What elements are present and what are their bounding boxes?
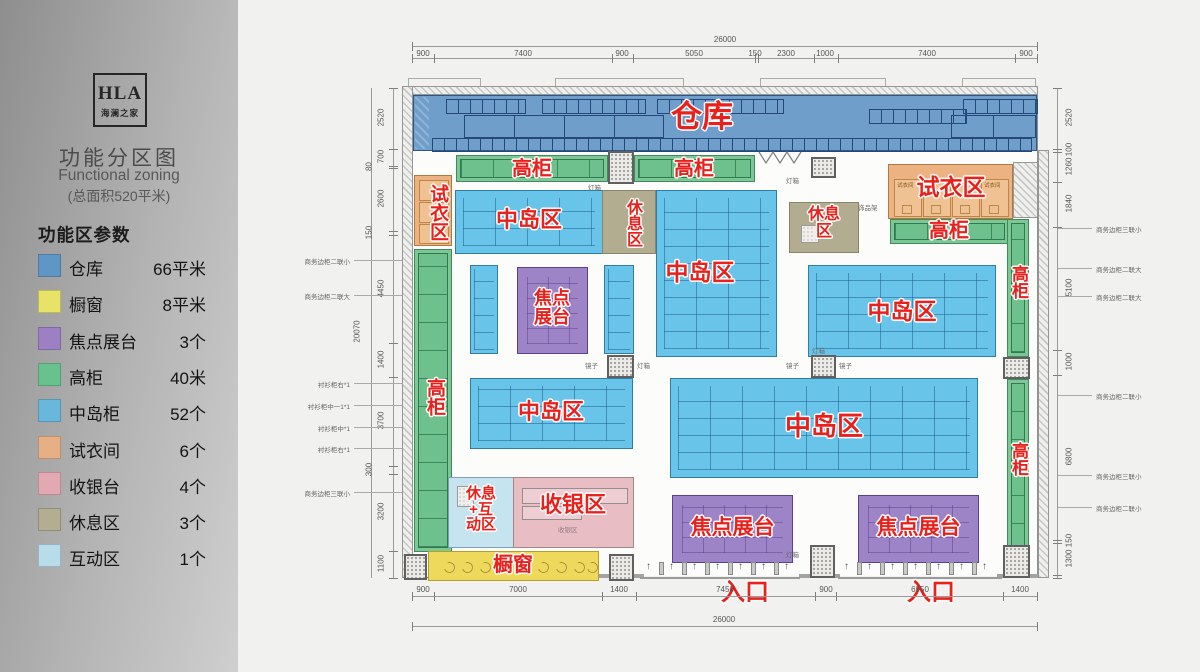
dim-tick	[1053, 540, 1062, 541]
dim-tick	[1053, 350, 1062, 351]
dim-tick	[1053, 152, 1062, 153]
legend-label: 试衣间	[69, 437, 120, 462]
wall-top	[412, 86, 1038, 95]
legend-label: 休息区	[69, 509, 120, 534]
dim-top-5: 2300	[770, 49, 802, 58]
brand-subtitle: 海澜之家	[95, 107, 145, 119]
entrance-arrow-icon: ↑	[715, 561, 720, 572]
dim-tick	[389, 578, 398, 579]
island-fixtures	[474, 269, 494, 350]
entrance-post	[880, 562, 885, 575]
brand-title: HLA	[95, 83, 145, 105]
entrance-post	[949, 562, 954, 575]
wall-right	[1038, 150, 1049, 578]
zone-island-strip-a	[470, 265, 498, 354]
annotation-leader	[354, 427, 402, 428]
light-box-text: 灯箱	[637, 360, 650, 370]
entrance-arrow-icon: ↑	[646, 561, 651, 572]
legend-value: 40米	[118, 364, 206, 389]
fitting-stool	[902, 205, 912, 214]
dim-tick	[389, 343, 398, 344]
dim-line-bottom-total	[412, 626, 1038, 627]
dim-tick	[1053, 578, 1062, 579]
warehouse-shelf-row	[432, 138, 1032, 152]
window-swirl-icon	[585, 560, 600, 575]
warehouse-shelf-row	[869, 109, 967, 124]
dim-line-bottom-segments	[412, 596, 1038, 597]
legend-swatch-warehouse	[38, 254, 61, 277]
legend-value: 3个	[118, 509, 206, 534]
dim-left-8: 300	[365, 448, 374, 492]
column	[404, 554, 427, 580]
functional-zoning-plan: HLA 海澜之家 功能分区图 Functional zoning (总面积520…	[0, 0, 1200, 672]
entrance-post	[705, 562, 710, 575]
column	[1003, 357, 1030, 379]
legend-label: 橱窗	[69, 291, 103, 316]
dim-left-6: 1400	[377, 338, 386, 382]
legend-swatch-cabinet	[38, 363, 61, 386]
warehouse-shelf-row	[963, 99, 1038, 114]
label-island: 中岛区	[776, 413, 872, 440]
dim-tick	[389, 88, 398, 89]
dim-right-0: 2520	[1065, 96, 1074, 140]
legend-swatch-interact	[38, 544, 61, 567]
entrance-post	[774, 562, 779, 575]
label-focus: 焦点展台	[862, 517, 975, 539]
annotation-leader	[354, 405, 402, 406]
zone-island-strip-b	[604, 265, 634, 354]
accessory-rack-text: 饰品架	[858, 202, 878, 212]
label-rest: 休息区	[618, 194, 640, 252]
entrance-post	[751, 562, 756, 575]
dim-left-3: 2600	[377, 177, 386, 221]
entrance-post	[903, 562, 908, 575]
light-box-text: 灯箱	[786, 175, 799, 185]
dim-bottom-2: 1400	[601, 585, 637, 594]
annotation-leader	[1058, 507, 1092, 508]
dim-tick	[389, 377, 398, 378]
page-subtitle: Functional zoning	[0, 167, 238, 185]
legend-value: 1个	[118, 545, 206, 570]
column	[810, 545, 835, 578]
dim-right-8: 1300	[1065, 537, 1074, 581]
label-focus: 焦点展台	[532, 289, 572, 326]
label-fitting-left: 试衣区	[421, 180, 447, 244]
dim-top-6: 1000	[809, 49, 841, 58]
annotation-left-5: 衬衫柜右*1	[250, 444, 350, 454]
label-cabinet: 高柜	[1009, 256, 1027, 308]
legend-value: 3个	[118, 328, 206, 353]
annotation-left-6: 商务边柜三联小	[250, 488, 350, 498]
dim-left-1: 700	[377, 135, 386, 179]
annotation-right-0: 商务边柜三联小	[1096, 224, 1142, 234]
dim-tick	[1053, 88, 1062, 89]
entrance-arrow-icon: ↑	[982, 561, 987, 572]
annotation-right-4: 商务边柜三联小	[1096, 471, 1142, 481]
dim-tick	[1053, 543, 1062, 544]
annotation-leader	[354, 492, 402, 493]
dim-top-4: 150	[743, 49, 767, 58]
legend-value: 52个	[118, 400, 206, 425]
label-cabinet: 高柜	[420, 371, 444, 423]
annotation-left-0: 商务边柜二联小	[250, 256, 350, 266]
dim-left-4: 150	[365, 211, 374, 255]
annotation-right-3: 商务边柜二联小	[1096, 391, 1142, 401]
dim-tick	[1053, 575, 1062, 576]
label-island: 中岛区	[660, 261, 740, 285]
annotation-left-4: 衬衫柜中*1	[250, 423, 350, 433]
entrance-arrow-icon: ↑	[936, 561, 941, 572]
dim-bottom-6: 1400	[1002, 585, 1038, 594]
dim-tick	[389, 551, 398, 552]
annotation-left-2: 衬衫柜右*1	[250, 379, 350, 389]
annotation-leader	[1058, 475, 1092, 476]
column	[811, 157, 836, 178]
column	[608, 151, 634, 184]
entrance-post	[926, 562, 931, 575]
entrance-post	[857, 562, 862, 575]
warehouse-shelf-row	[542, 99, 646, 114]
dim-top-7: 7400	[909, 49, 945, 58]
legend-swatch-window	[38, 290, 61, 313]
column	[1003, 545, 1030, 578]
dim-bottom-1: 7000	[500, 585, 536, 594]
annotation-leader	[354, 260, 402, 261]
warehouse-shelf-row	[446, 99, 526, 114]
entrance-post	[728, 562, 733, 575]
annotation-leader	[354, 448, 402, 449]
entrance-arrow-icon: ↑	[844, 561, 849, 572]
legend-label: 中岛柜	[69, 400, 120, 425]
dim-tick	[1053, 182, 1062, 183]
dim-bottom-4: 900	[808, 585, 844, 594]
entrance-arrow-icon: ↑	[890, 561, 895, 572]
fitting-stool	[989, 205, 999, 214]
dim-right-6: 6800	[1065, 435, 1074, 479]
annotation-left-3: 衬衫柜中一1*1	[250, 401, 350, 411]
dim-left-0: 2520	[377, 96, 386, 140]
legend-swatch-cashier	[38, 472, 61, 495]
label-warehouse: 仓库	[652, 101, 752, 133]
annotation-leader	[354, 295, 402, 296]
annotation-right-2: 商务边柜二联大	[1096, 292, 1142, 302]
entrance-arrow-icon: ↑	[784, 561, 789, 572]
window-swirl-icon	[554, 560, 569, 575]
sidebar: HLA 海澜之家 功能分区图 Functional zoning (总面积520…	[0, 0, 238, 672]
dim-bottom-5: 6950	[902, 585, 938, 594]
brand-logo: HLA 海澜之家	[93, 73, 147, 127]
dim-line-top-segments	[412, 58, 1038, 59]
dim-tick	[389, 166, 398, 167]
label-cabinet: 高柜	[506, 159, 558, 180]
wall-left	[402, 86, 413, 578]
entrance-arrow-icon: ↑	[738, 561, 743, 572]
annotation-leader	[1058, 228, 1092, 229]
legend-value: 4个	[118, 473, 206, 498]
label-cabinet: 高柜	[1009, 433, 1027, 485]
dim-top-total: 26000	[696, 35, 754, 44]
dim-top-2: 900	[604, 49, 640, 58]
dim-right-3: 1840	[1065, 182, 1074, 226]
total-area-note: (总面积520平米)	[0, 186, 238, 206]
legend-value: 66平米	[118, 255, 206, 280]
dim-bottom-0: 900	[405, 585, 441, 594]
door-zigzag-icon	[758, 149, 806, 166]
dim-top-8: 900	[1008, 49, 1044, 58]
entrance-arrow-icon: ↑	[761, 561, 766, 572]
dim-tick	[389, 474, 398, 475]
label-window: 橱窗	[486, 555, 540, 576]
label-rest-interact: 休息+互动区	[463, 486, 499, 533]
label-cabinet: 高柜	[668, 159, 720, 180]
entrance-post	[972, 562, 977, 575]
legend-value: 8平米	[118, 291, 206, 316]
dim-top-3: 5050	[676, 49, 712, 58]
dim-top-1: 7400	[505, 49, 541, 58]
label-rest: 休息区	[806, 207, 842, 240]
label-cabinet: 高柜	[923, 221, 975, 242]
label-focus: 焦点展台	[676, 517, 789, 539]
legend-swatch-rest	[38, 508, 61, 531]
legend-swatch-island	[38, 399, 61, 422]
dim-tick	[389, 168, 398, 169]
entrance-post	[682, 562, 687, 575]
cashier-small-text: 收银区	[558, 524, 578, 534]
fitting-stool	[960, 205, 970, 214]
dim-line-right-segments	[1057, 88, 1058, 578]
warehouse-corner-hatch	[415, 97, 429, 149]
annotation-leader	[354, 383, 402, 384]
legend-label: 高柜	[69, 364, 103, 389]
entrance-arrow-icon: ↑	[913, 561, 918, 572]
dim-bottom-total: 26000	[700, 615, 748, 624]
light-box-text: 灯箱	[786, 549, 799, 559]
island-fixtures	[608, 269, 630, 350]
wall-right-inner	[1013, 162, 1038, 218]
dim-tick	[1053, 149, 1062, 150]
dim-tick	[389, 231, 398, 232]
dim-tick	[389, 149, 398, 150]
entrance-arrow-icon: ↑	[959, 561, 964, 572]
dim-top-0: 900	[405, 49, 441, 58]
entrance-arrow-icon: ↑	[692, 561, 697, 572]
label-cashier: 收银区	[531, 494, 615, 517]
entrance-threshold	[640, 577, 800, 579]
legend-title: 功能区参数	[38, 222, 131, 247]
column	[609, 554, 634, 581]
mirror-text: 镜子	[585, 360, 598, 370]
dim-tick	[389, 466, 398, 467]
dim-line-top-total	[412, 46, 1038, 47]
dim-right-5: 1000	[1065, 340, 1074, 384]
dim-tick	[389, 235, 398, 236]
label-island: 中岛区	[862, 300, 942, 324]
legend-label: 收银台	[69, 473, 120, 498]
dim-tick	[1037, 622, 1038, 631]
annotation-leader	[1058, 268, 1092, 269]
dim-left-10: 1100	[377, 542, 386, 586]
legend-swatch-focus	[38, 327, 61, 350]
dim-left-2: 80	[365, 145, 374, 189]
label-fitting: 试衣区	[908, 176, 994, 200]
annotation-right-1: 商务边柜二联大	[1096, 264, 1142, 274]
warehouse-rack	[464, 115, 664, 138]
column	[811, 355, 836, 378]
dim-left-total: 20070	[353, 310, 362, 354]
dim-tick	[1053, 375, 1062, 376]
dim-line-left-segments	[393, 88, 394, 578]
annotation-leader	[1058, 395, 1092, 396]
mirror-text: 镜子	[839, 360, 852, 370]
legend-label: 仓库	[69, 255, 103, 280]
entrance-post	[659, 562, 664, 575]
window-swirl-icon	[460, 560, 475, 575]
annotation-right-5: 商务边柜二联小	[1096, 503, 1142, 513]
fitting-stool	[931, 205, 941, 214]
legend-value: 6个	[118, 437, 206, 462]
entrance-arrow-icon: ↑	[867, 561, 872, 572]
dim-tick	[412, 622, 413, 631]
column	[607, 355, 634, 378]
dim-left-5: 4450	[377, 267, 386, 311]
window-swirl-icon	[442, 560, 457, 575]
entrance-arrow-icon: ↑	[669, 561, 674, 572]
dim-bottom-3: 7450	[707, 585, 743, 594]
light-box-text: 灯箱	[588, 182, 601, 192]
annotation-left-1: 商务边柜二联大	[250, 291, 350, 301]
legend-swatch-fitting	[38, 436, 61, 459]
window-swirl-icon	[572, 560, 587, 575]
legend-label: 互动区	[69, 545, 120, 570]
dim-left-9: 3200	[377, 490, 386, 534]
light-box-text: 灯箱	[812, 345, 825, 355]
mirror-text: 镜子	[786, 360, 799, 370]
label-island: 中岛区	[487, 209, 571, 232]
dim-right-4: 5100	[1065, 266, 1074, 310]
annotation-leader	[1058, 296, 1092, 297]
label-island: 中岛区	[509, 401, 593, 424]
